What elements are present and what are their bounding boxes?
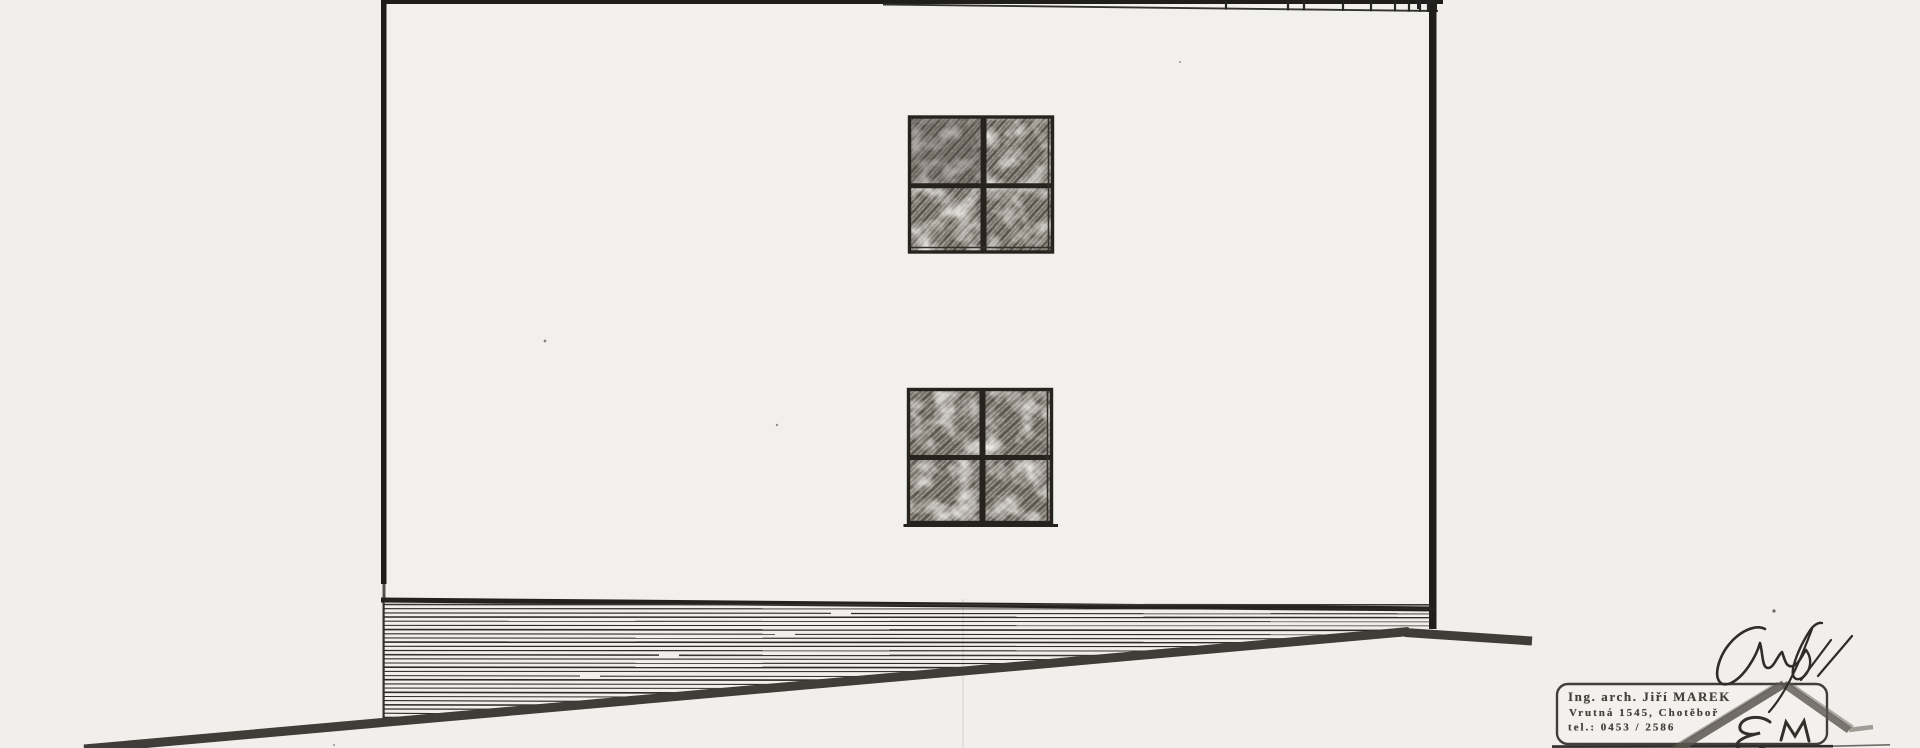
svg-text:Vrutná 1545, Chotěboř: Vrutná 1545, Chotěboř xyxy=(1569,707,1719,719)
svg-text:Ing. arch. Jiří MAREK: Ing. arch. Jiří MAREK xyxy=(1568,689,1731,704)
svg-text:tel.: 0453 / 2586: tel.: 0453 / 2586 xyxy=(1568,722,1675,734)
